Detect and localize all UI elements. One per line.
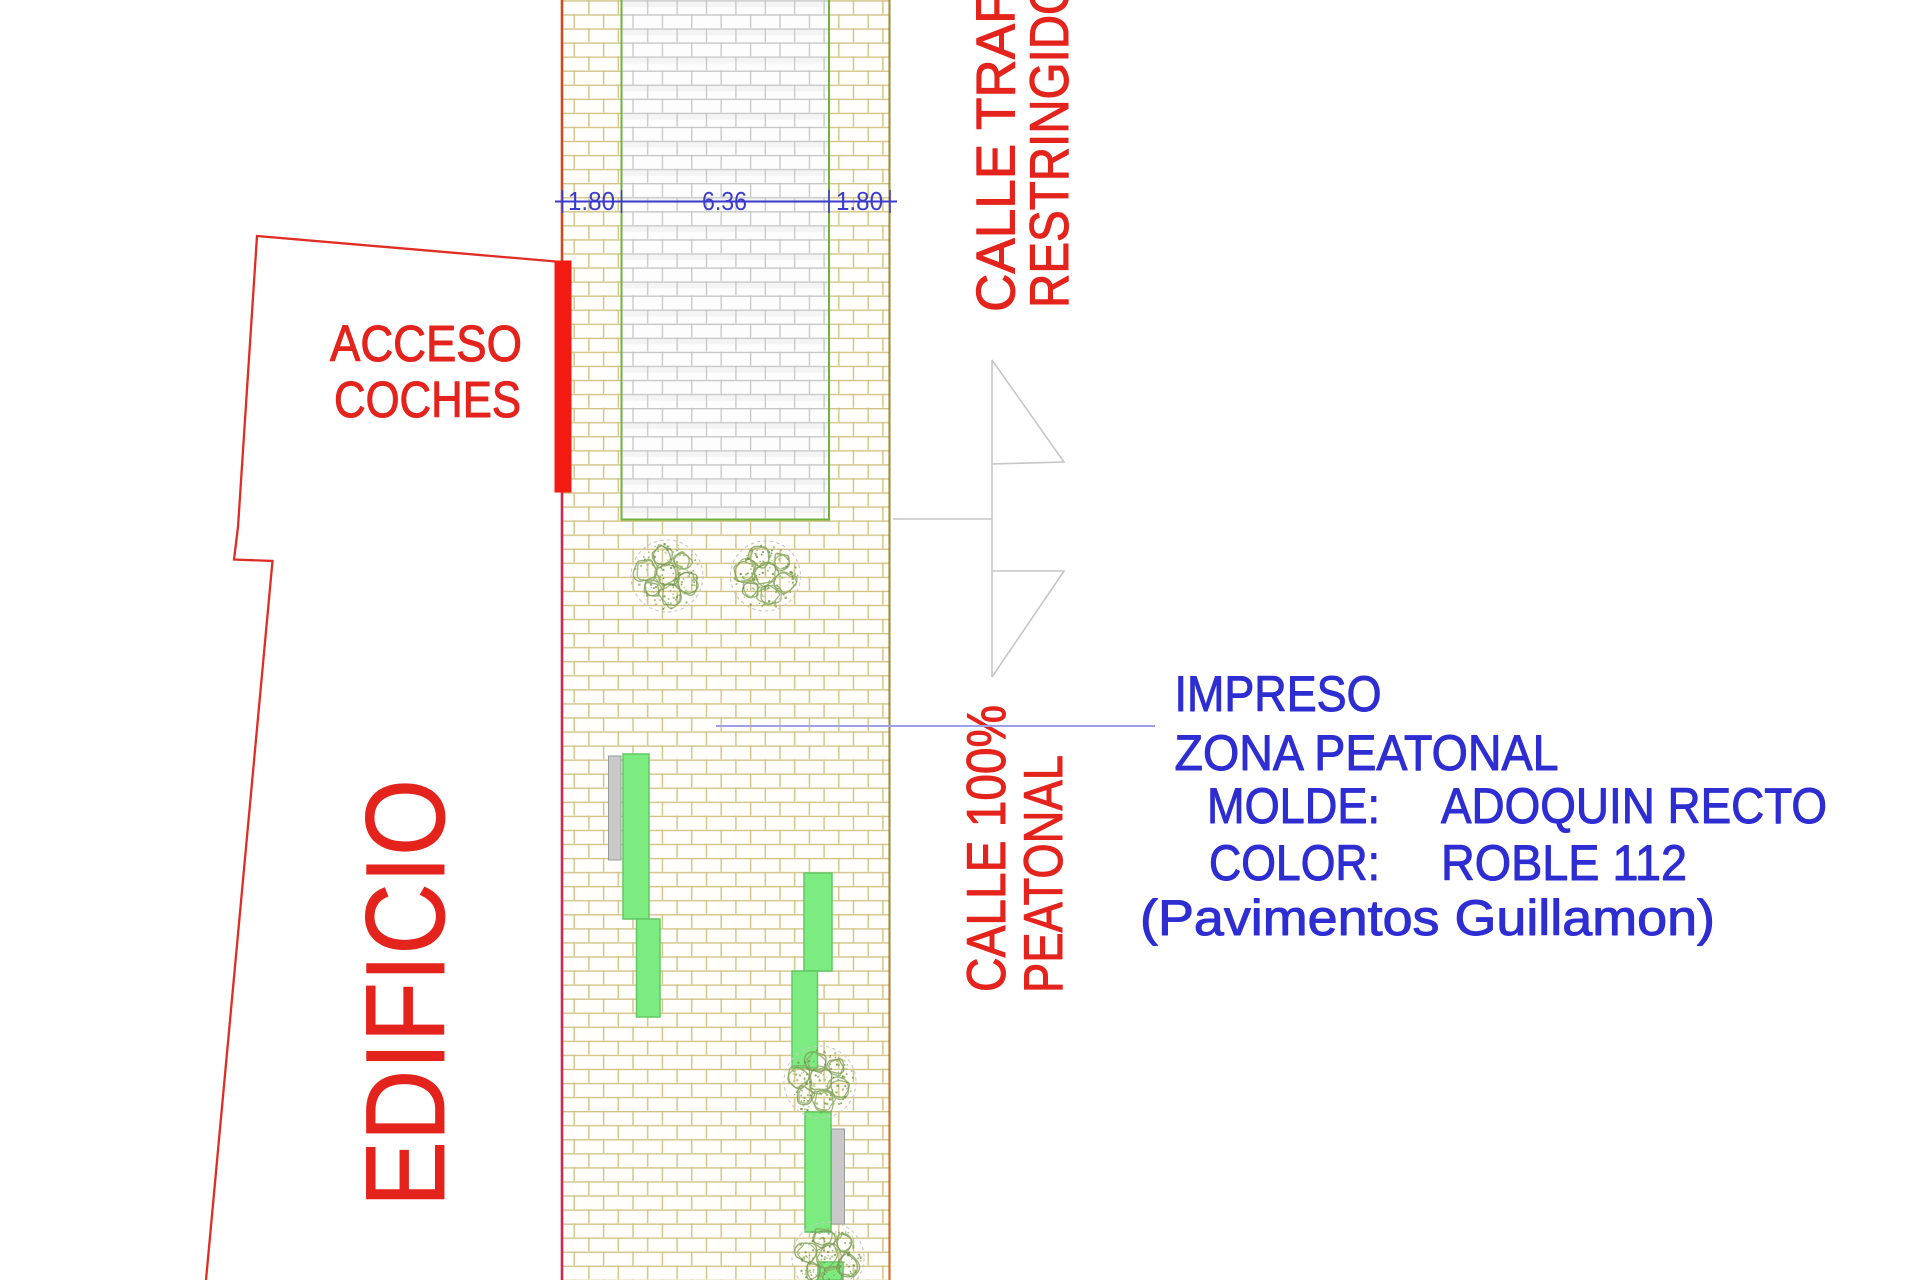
svg-text:ADOQUIN RECTO: ADOQUIN RECTO (1441, 778, 1827, 834)
svg-text:COLOR:: COLOR: (1209, 835, 1380, 891)
svg-text:COCHES: COCHES (334, 371, 521, 428)
svg-text:ZONA PEATONAL: ZONA PEATONAL (1175, 725, 1559, 781)
svg-text:CALLE 100%: CALLE 100% (955, 705, 1017, 992)
svg-text:PEATONAL: PEATONAL (1012, 755, 1074, 993)
svg-text:(Pavimentos Guillamon): (Pavimentos Guillamon) (1140, 890, 1715, 946)
svg-text:6.36: 6.36 (702, 186, 747, 216)
svg-text:RESTRINGIDO: RESTRINGIDO (1018, 0, 1080, 308)
svg-text:IMPRESO: IMPRESO (1175, 666, 1382, 722)
svg-text:ROBLE 112: ROBLE 112 (1441, 835, 1687, 891)
svg-text:EDIFICIO: EDIFICIO (343, 779, 468, 1207)
svg-text:1.80: 1.80 (836, 186, 883, 216)
svg-text:ACCESO: ACCESO (330, 315, 522, 372)
svg-text:1.80: 1.80 (568, 186, 615, 216)
svg-text:MOLDE:: MOLDE: (1207, 778, 1380, 834)
